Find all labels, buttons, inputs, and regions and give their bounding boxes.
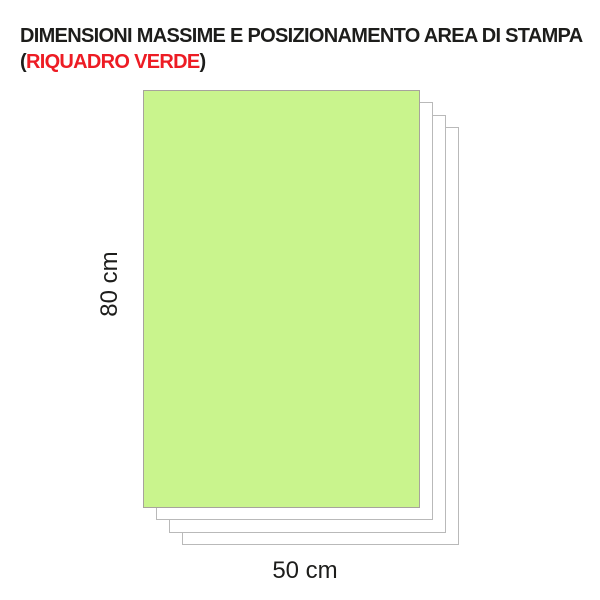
print-area-green-rect [143, 90, 420, 508]
print-area-diagram: 80 cm 50 cm [0, 0, 600, 600]
height-label: 80 cm [95, 224, 125, 344]
page: DIMENSIONI MASSIME E POSIZIONAMENTO AREA… [0, 0, 600, 600]
width-label: 50 cm [235, 556, 375, 586]
